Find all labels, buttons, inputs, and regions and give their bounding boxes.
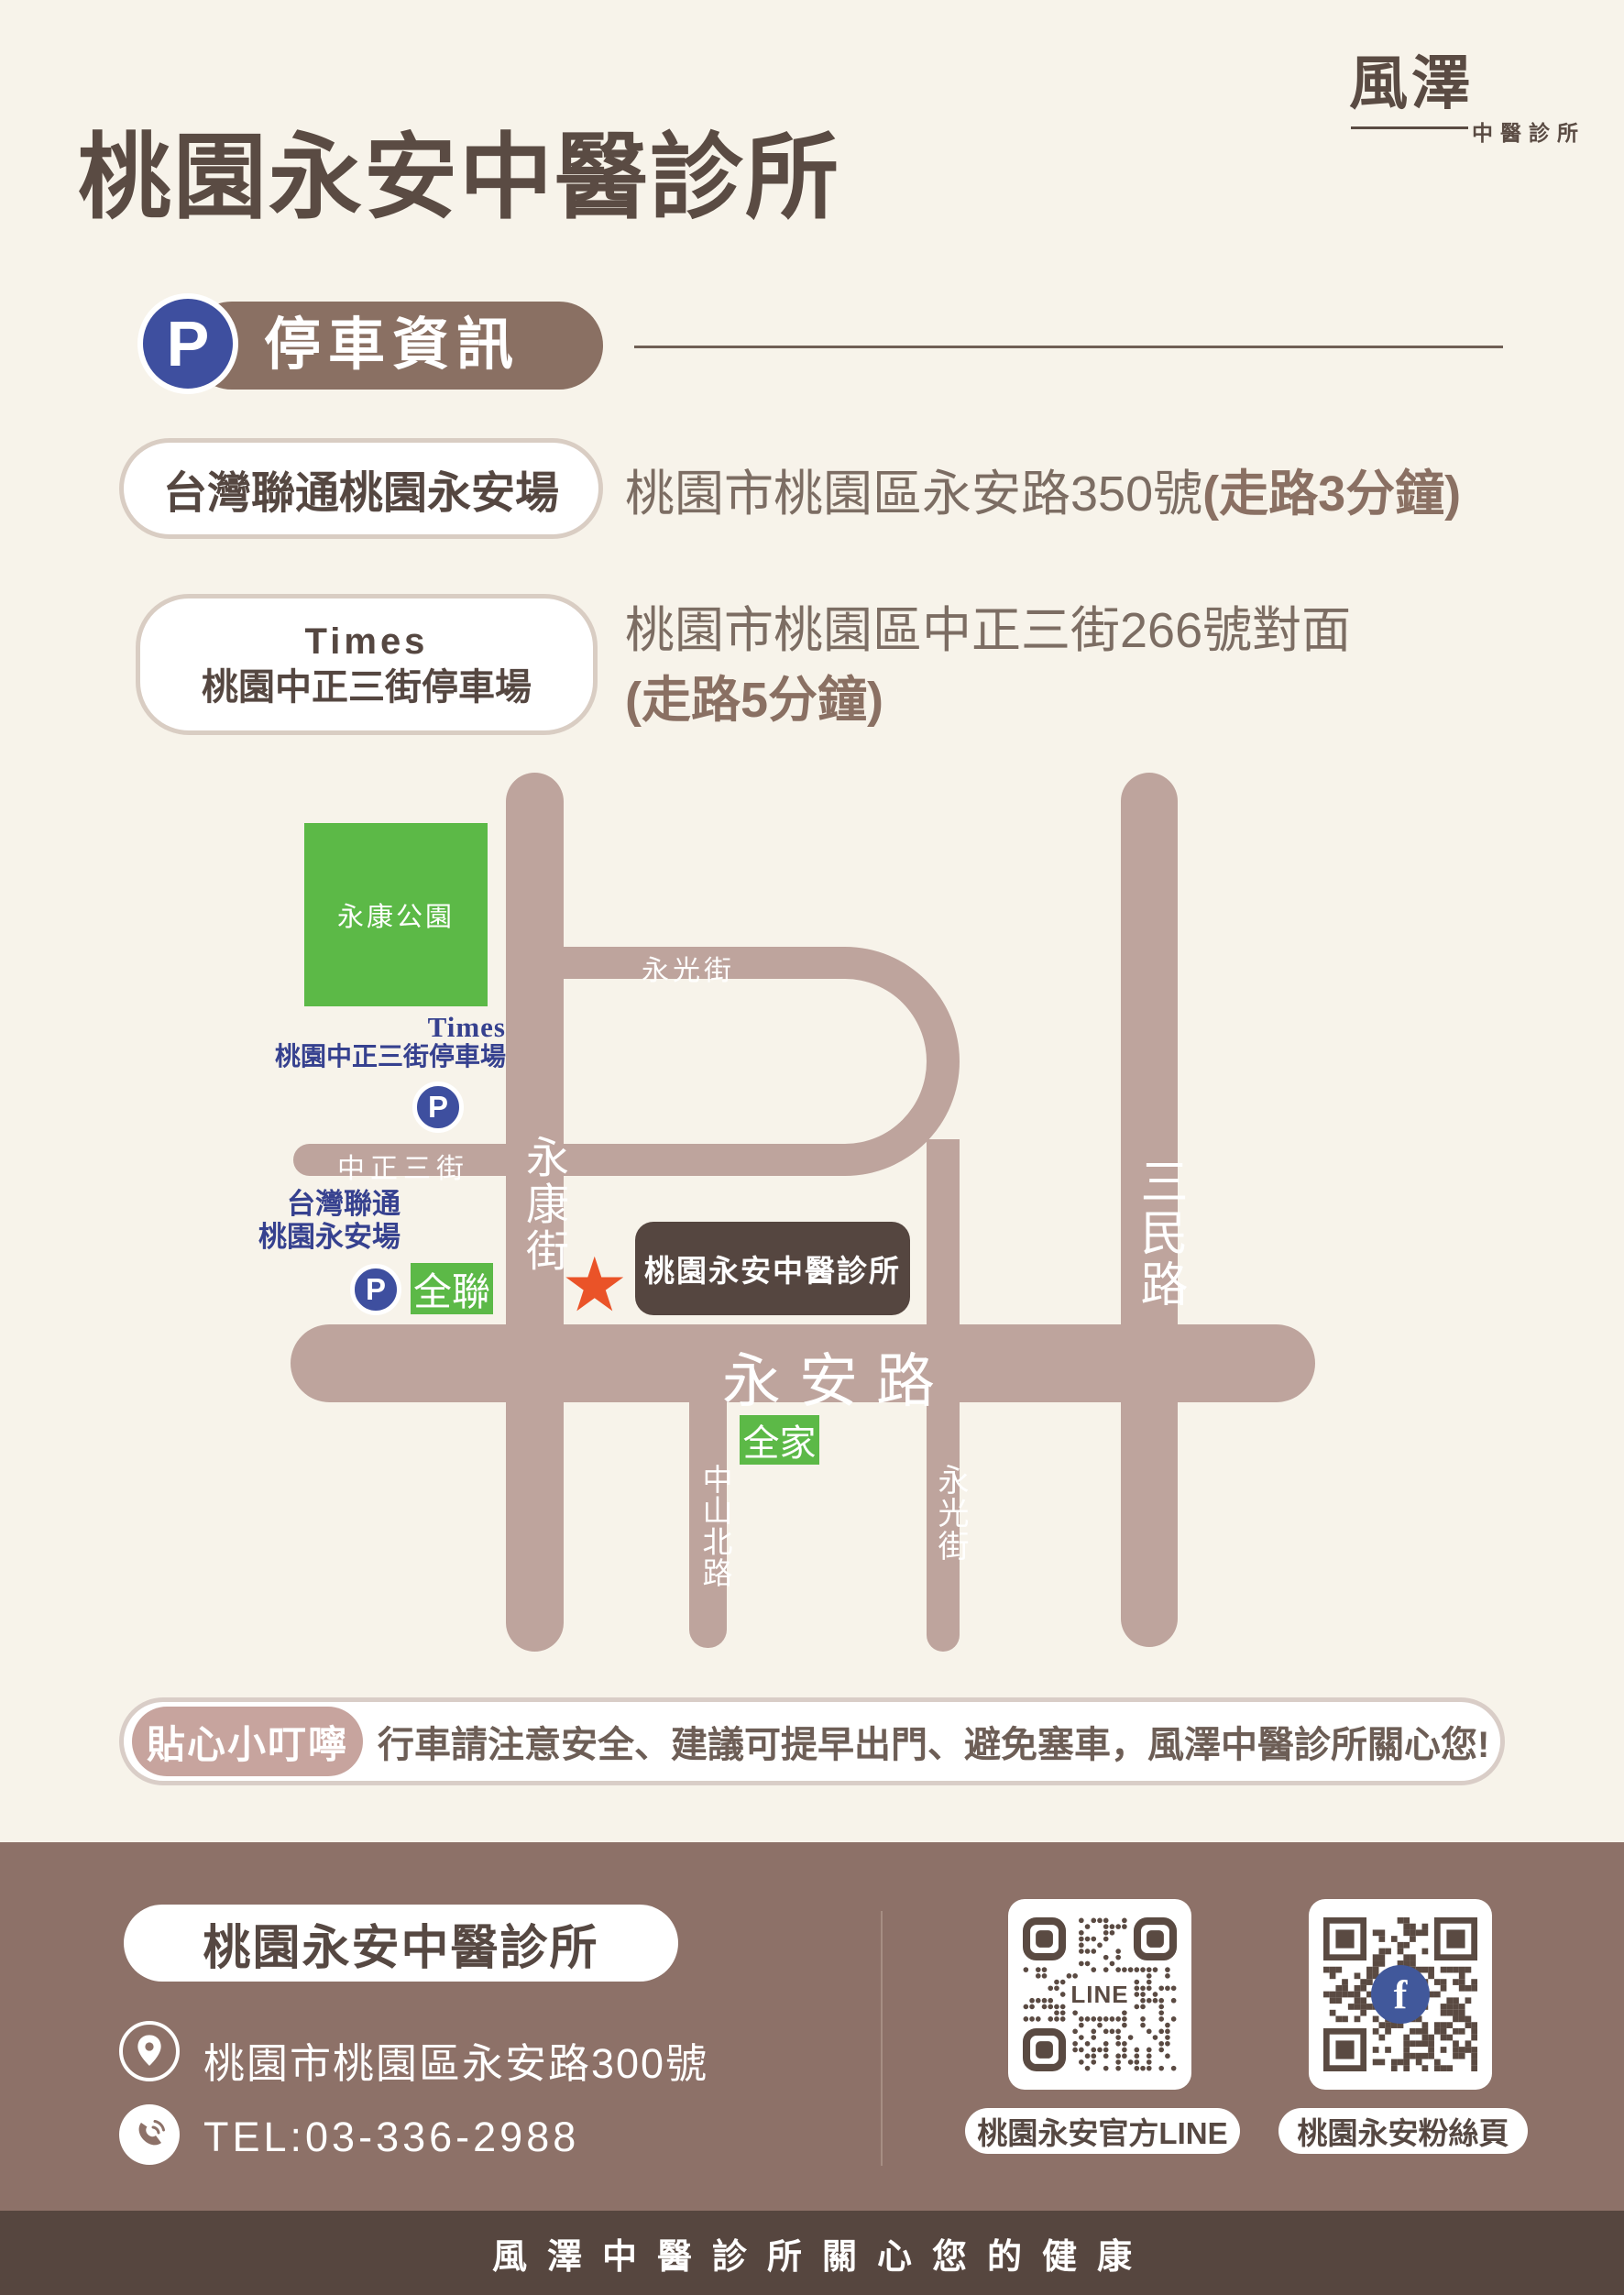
parking-p-icon: P [137, 293, 238, 394]
map-clinic-name-box: 桃園永安中醫診所 [635, 1222, 910, 1315]
parking-section-title: 停車資訊 [264, 302, 521, 390]
line-qr-center-label: LINE [1066, 1979, 1134, 2010]
phone-glyph [131, 2116, 168, 2153]
location-pin-glyph [129, 2031, 170, 2071]
footer-tagline-strip: 風澤中醫診所關心您的健康 [0, 2211, 1624, 2295]
familymart-badge: 全家 [740, 1415, 819, 1465]
parking-lot-2-name-line2: 桃園中正三街停車場 [202, 664, 532, 710]
footer-phone-number: TEL:03-336-2988 [203, 2114, 579, 2161]
facebook-qr-caption: 桃園永安粉絲頁 [1278, 2108, 1528, 2154]
map-times-parking-label: Times 桃園中正三街停車場 [238, 1012, 506, 1072]
parking-lot-1-address-text: 桃園市桃園區永安路350號 [625, 453, 1202, 525]
road-label-sanmin: 三民路 [1125, 1157, 1193, 1311]
yongkang-park-label: 永康公園 [337, 895, 455, 934]
map-taiwan-parking-line1: 台灣聯通 [220, 1188, 401, 1221]
road-label-yongguang-north: 永光街 [642, 948, 735, 988]
brand-logo-underline [1351, 126, 1468, 129]
section-divider-line [634, 346, 1503, 348]
location-pin-icon [119, 2021, 180, 2081]
parking-lot-1-address: 桃園市桃園區永安路350號 (走路3分鐘) [625, 438, 1461, 539]
road-label-yongan: 永安路 [722, 1334, 953, 1419]
parking-lot-2-walk-time: (走路5分鐘) [625, 665, 1351, 735]
brand-logo-subtitle: 中醫診所 [1472, 115, 1586, 147]
brand-logo-calligraphy: 風澤 [1349, 37, 1474, 121]
facebook-icon: f [1371, 1965, 1430, 2024]
line-qr-caption: 桃園永安官方LINE [965, 2108, 1240, 2154]
map-taiwan-parking-line2: 桃園永安場 [220, 1221, 401, 1254]
map-times-parking-line2: 桃園中正三街停車場 [238, 1043, 506, 1072]
road-label-zhongzheng-3rd: 中正三街 [337, 1146, 469, 1186]
line-qr-code: LINE [1008, 1899, 1191, 2090]
footer-divider [881, 1911, 883, 2166]
parking-lot-2-name: Times 桃園中正三街停車場 [136, 594, 598, 735]
map-times-parking-line1: Times [238, 1012, 506, 1043]
parking-lot-1-name: 台灣聯通桃園永安場 [119, 438, 603, 539]
facebook-qr-code: f [1309, 1899, 1492, 2090]
parking-lot-1-walk-time: (走路3分鐘) [1202, 453, 1461, 525]
footer-address: 桃園市桃園區永安路300號 [203, 2030, 708, 2090]
footer-clinic-name-pill: 桃園永安中醫診所 [124, 1905, 678, 1982]
map-parking-p-icon-taiwan: P [350, 1264, 401, 1315]
parking-lot-2-address-text: 桃園市桃園區中正三街266號對面 [625, 596, 1351, 665]
road-yongguang-loop [564, 947, 960, 1176]
road-label-zhongshan-north: 中山北路 [692, 1464, 736, 1588]
phone-icon [119, 2104, 180, 2165]
yongkang-park-area: 永康公園 [304, 823, 488, 1006]
road-label-yongguang-south: 永光街 [927, 1464, 972, 1563]
map-parking-p-icon-times: P [412, 1082, 464, 1133]
parking-lot-2-name-line1: Times [305, 619, 429, 664]
pxmart-badge: 全聯 [411, 1263, 493, 1314]
page-title: 桃園永安中醫診所 [78, 103, 840, 237]
clinic-location-star-icon: ★ [561, 1248, 629, 1323]
notice-text: 行車請注意安全、建議可提早出門、避免塞車，風澤中醫診所關心您! [378, 1697, 1489, 1785]
map-taiwan-parking-label: 台灣聯通 桃園永安場 [220, 1188, 401, 1254]
parking-lot-2-address: 桃園市桃園區中正三街266號對面 (走路5分鐘) [625, 596, 1351, 735]
notice-badge: 貼心小叮嚀 [132, 1707, 363, 1776]
footer-tagline: 風澤中醫診所關心您的健康 [492, 2228, 1152, 2279]
